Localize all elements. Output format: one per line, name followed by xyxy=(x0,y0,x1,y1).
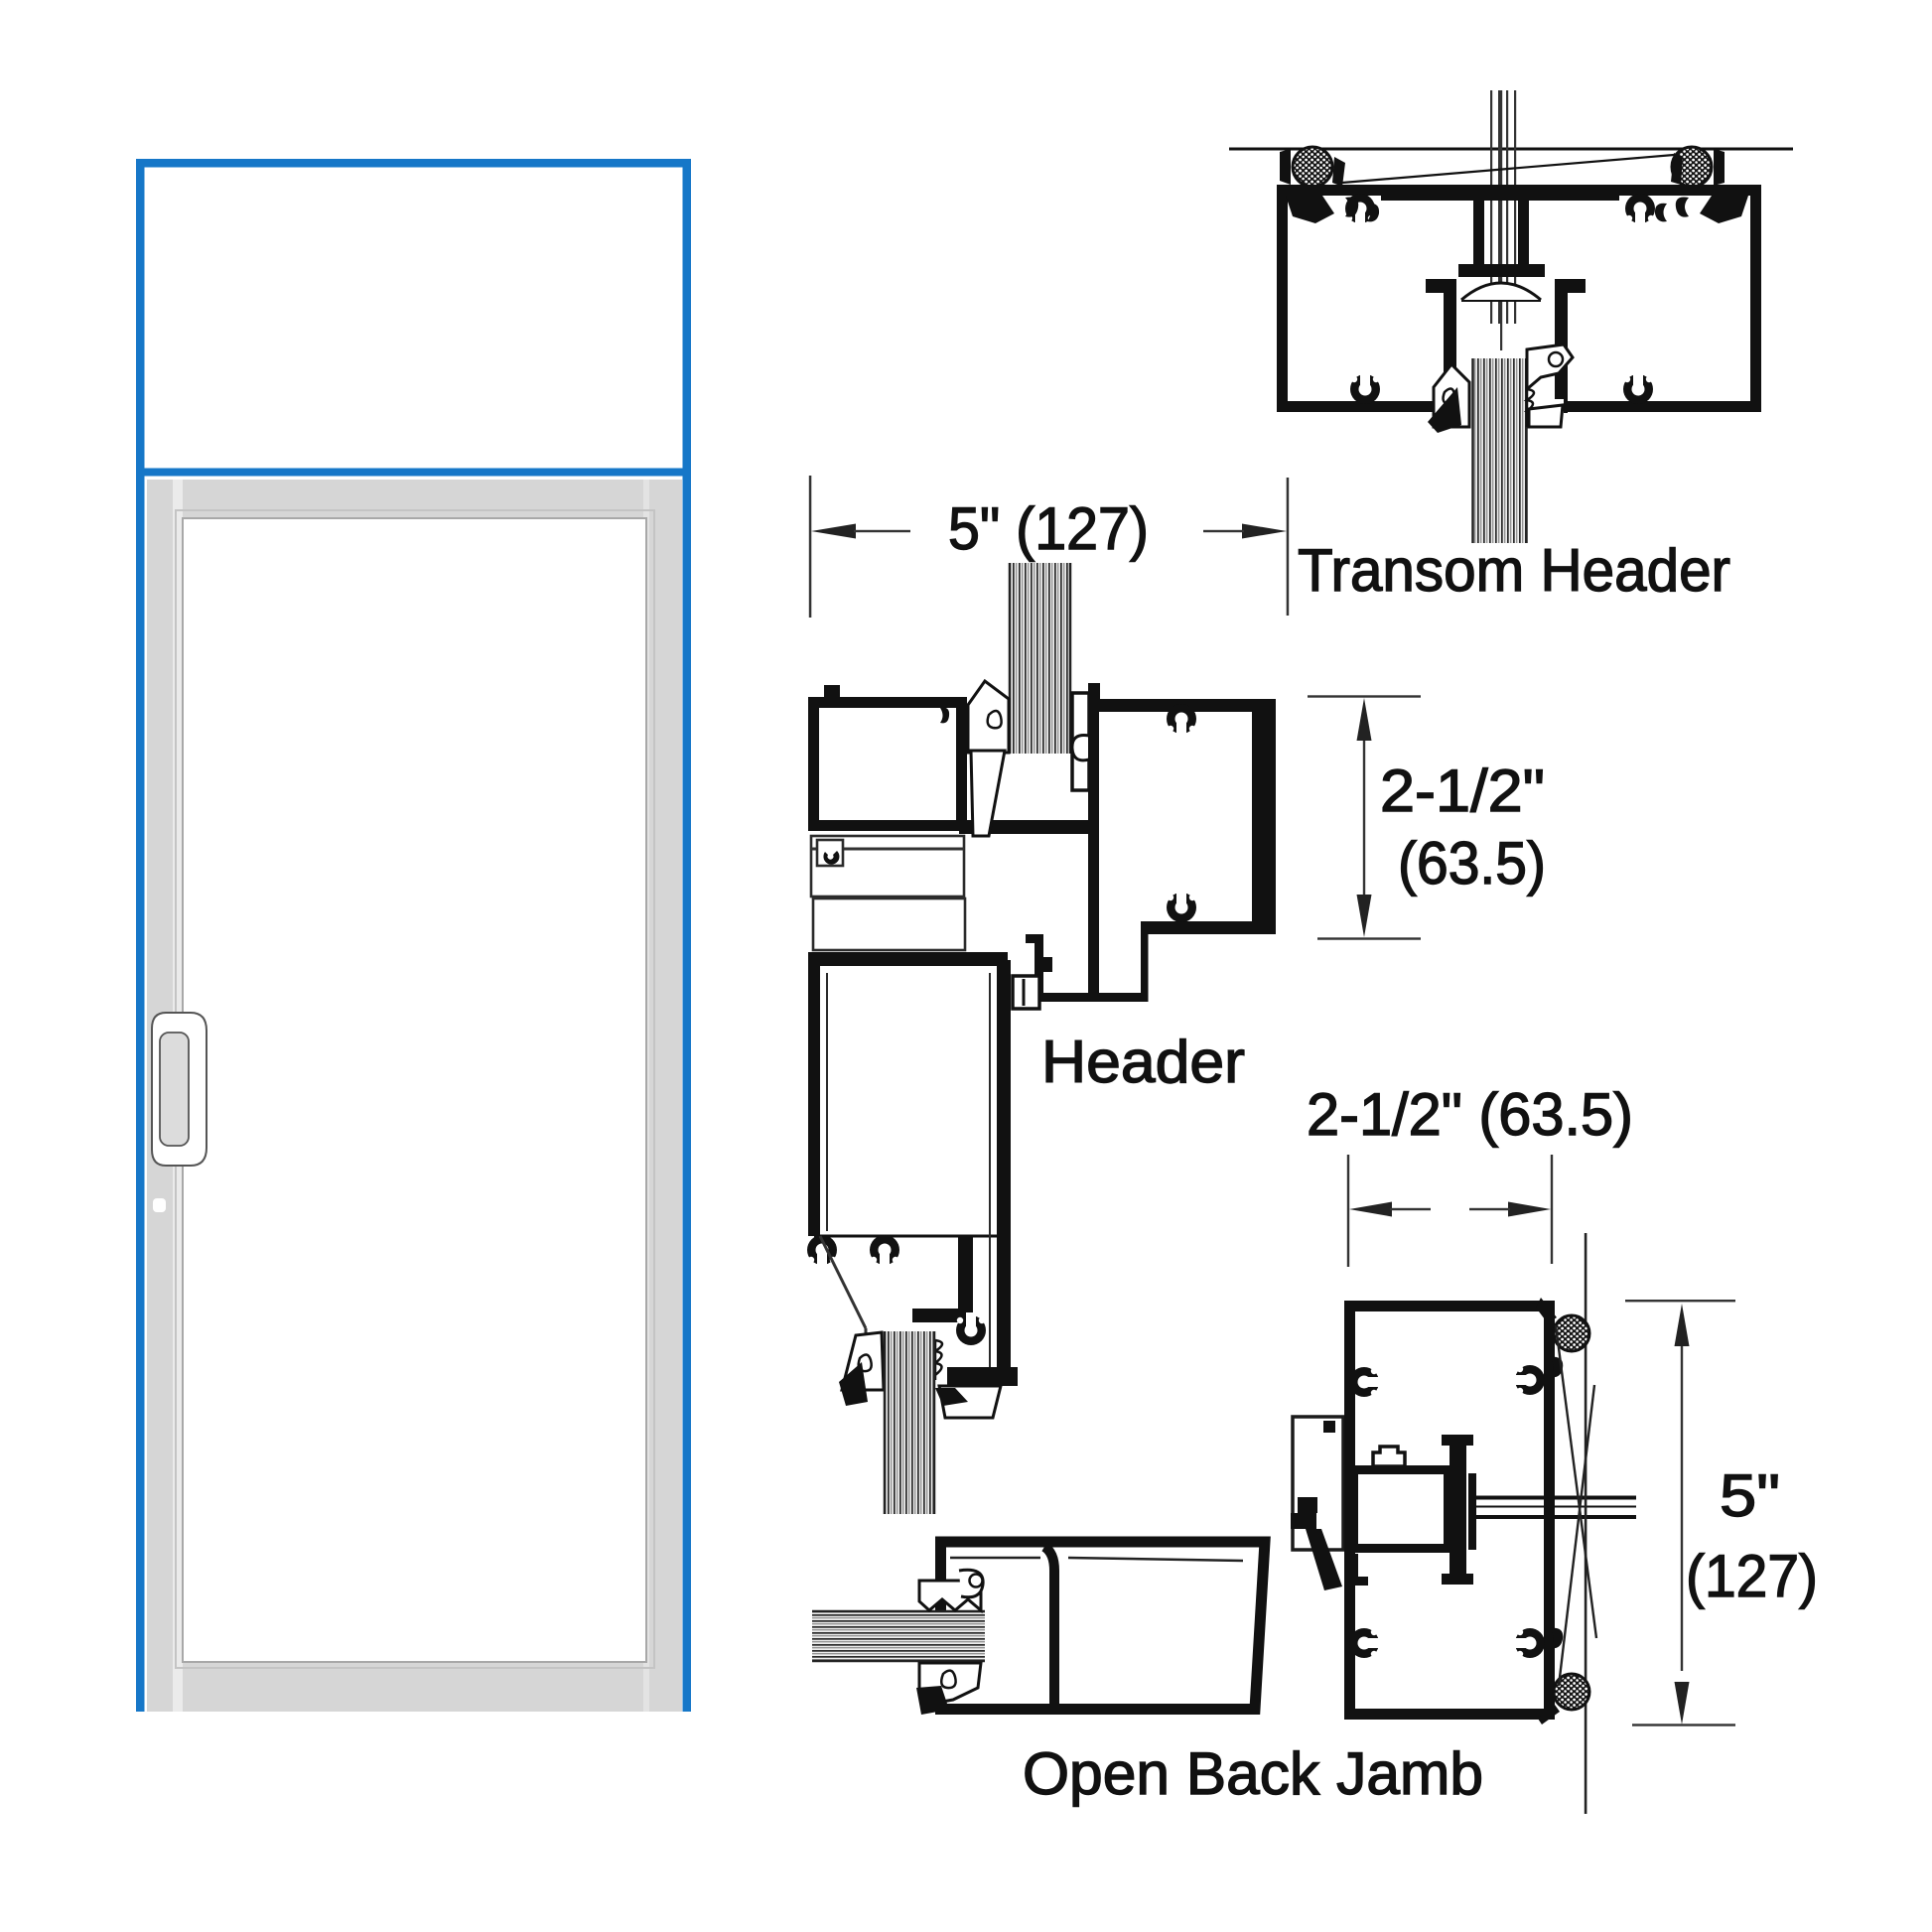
svg-text:5": 5" xyxy=(1720,1462,1780,1529)
svg-text:(63.5): (63.5) xyxy=(1398,830,1546,897)
svg-text:5" (127): 5" (127) xyxy=(948,495,1149,562)
svg-text:Open Back Jamb: Open Back Jamb xyxy=(1023,1740,1483,1807)
svg-text:2-1/2": 2-1/2" xyxy=(1380,758,1545,824)
svg-text:Header: Header xyxy=(1041,1029,1245,1095)
svg-text:2-1/2" (63.5): 2-1/2" (63.5) xyxy=(1307,1081,1633,1148)
svg-text:Transom Header: Transom Header xyxy=(1298,537,1730,604)
svg-text:(127): (127) xyxy=(1686,1543,1818,1609)
